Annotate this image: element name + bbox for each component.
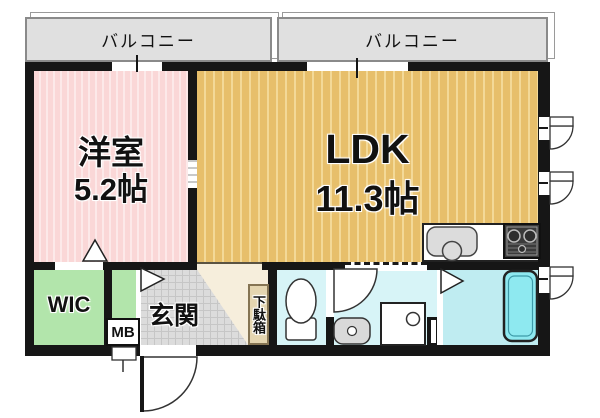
shoe-cabinet: 下駄箱 — [248, 284, 269, 345]
washbasin-icon — [334, 318, 370, 344]
entrance-door-swing-icon — [140, 356, 197, 412]
wic-label: WIC — [34, 292, 104, 318]
meter-box: MB — [106, 318, 140, 346]
hall-door-icon — [141, 268, 164, 291]
ldk-name: LDK — [197, 126, 538, 173]
outswing-window2-icon — [550, 172, 573, 204]
kitchen-sink-icon — [427, 227, 477, 261]
west-room-door-icon — [83, 240, 107, 261]
bath-door-icon — [441, 269, 463, 293]
western-room-area: 5.2帖 — [34, 164, 188, 209]
washroom-door-swing-icon — [334, 269, 377, 312]
meter-box-door-icon — [112, 347, 136, 372]
genkan-label: 玄関 — [138, 296, 210, 332]
gas-stove-icon — [504, 224, 540, 258]
bath-outswing-window-icon — [550, 267, 573, 299]
meter-box-label: MB — [111, 324, 134, 341]
bathtub-icon — [504, 271, 537, 341]
outswing-window1-icon — [550, 117, 573, 149]
washing-machine-icon — [381, 303, 425, 345]
toilet-icon — [286, 279, 316, 340]
ldk-area: 11.3帖 — [197, 170, 538, 222]
shoe-cabinet-label: 下駄箱 — [252, 295, 265, 334]
floor-plan: バルコニー バルコニー — [0, 0, 600, 418]
